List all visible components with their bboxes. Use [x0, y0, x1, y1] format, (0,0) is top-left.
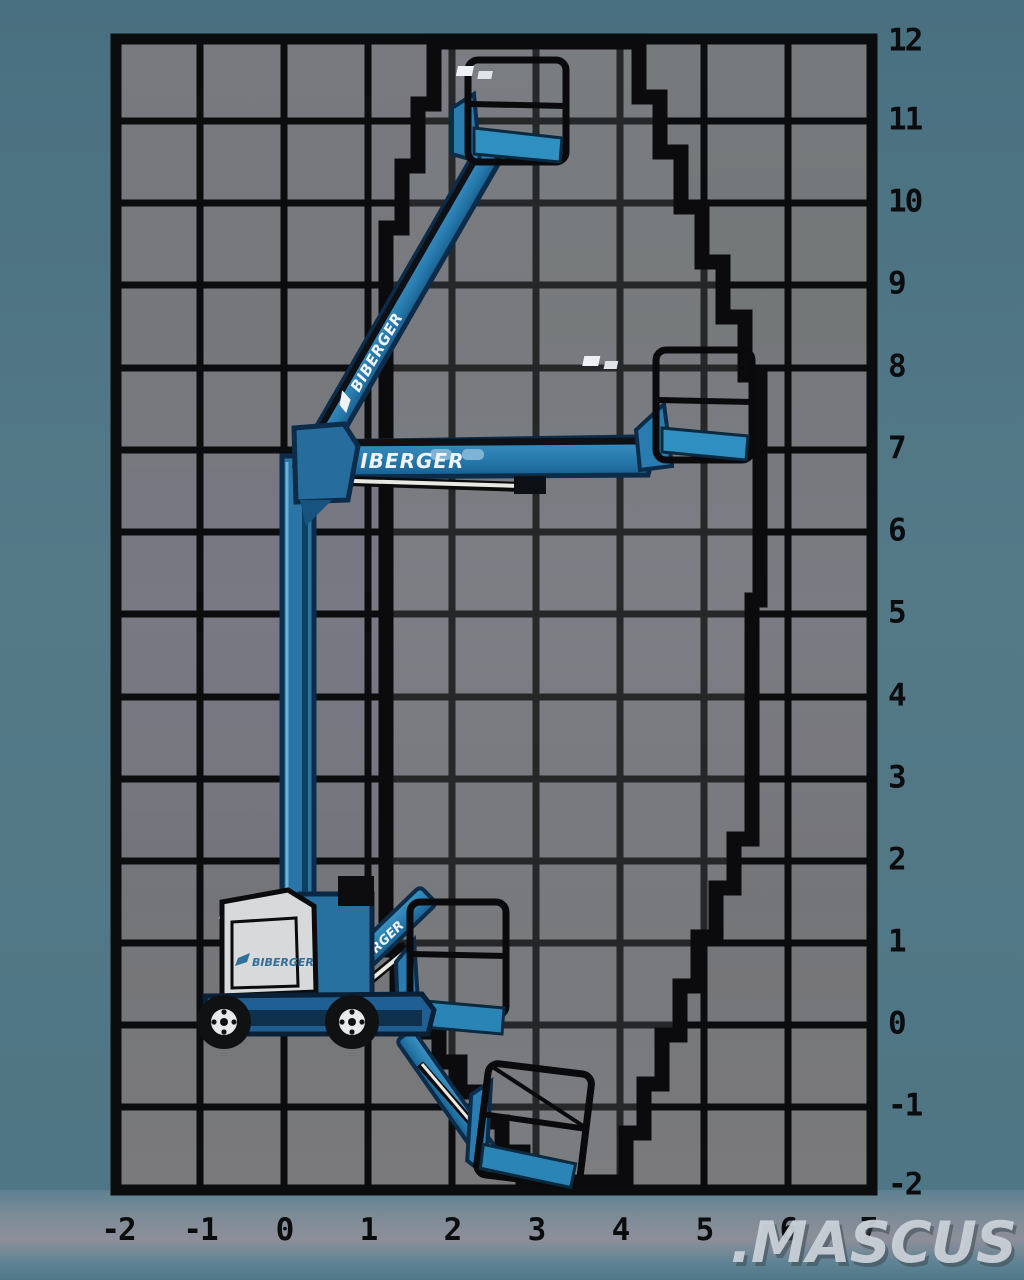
boom-horizontal-top-chord [316, 441, 644, 443]
wheel-rear [325, 995, 379, 1049]
axis-tick-label: 1 [888, 924, 906, 960]
boom-horizontal-brand-label: BIBERGER [344, 449, 464, 473]
basket-top-midrail [470, 104, 566, 106]
wheel-front [197, 995, 251, 1049]
axis-tick-label: 11 [888, 102, 923, 138]
basket-top-console [456, 66, 474, 76]
axis-tick-label: 0 [888, 1006, 905, 1042]
axis-tick-label: -1 [888, 1088, 923, 1124]
basket-mid-midrail [658, 400, 752, 402]
axis-tick-label: 12 [888, 23, 922, 59]
basket-top-console-2 [477, 71, 493, 79]
boom-slot-2 [462, 449, 484, 460]
axis-tick-label: 7 [888, 431, 905, 467]
cover-brand-label: BIBERGER [252, 956, 314, 969]
turret-cover-panel [222, 890, 316, 996]
axis-tick-label: 2 [888, 842, 905, 878]
basket-mid-console-2 [604, 361, 619, 369]
axis-tick-label: -2 [888, 1167, 922, 1203]
mascus-watermark: .MASCUS .MASCUS [730, 1210, 1019, 1280]
axis-tick-label: 4 [888, 678, 906, 714]
axis-tick-label: 2 [444, 1212, 461, 1248]
reach-diagram-page: BIBERGER BIBERGER [0, 0, 1024, 1280]
axis-tick-label: 4 [612, 1212, 630, 1248]
axis-tick-label: 1 [360, 1212, 378, 1248]
axis-tick-label: -1 [183, 1212, 218, 1248]
axis-tick-label: 6 [888, 513, 905, 549]
basket-mid-console [582, 356, 600, 366]
reach-diagram-canvas: BIBERGER BIBERGER [0, 0, 1024, 1280]
watermark-text: .MASCUS [730, 1210, 1016, 1276]
axis-tick-label: 10 [888, 184, 922, 220]
boom-pivot-knuckle [294, 424, 358, 502]
axis-tick-label: 8 [888, 349, 905, 385]
basket-low-midrail [412, 954, 506, 956]
axis-tick-label: 5 [888, 595, 905, 631]
axis-tick-label: 0 [276, 1212, 293, 1248]
axis-tick-label: 3 [528, 1212, 545, 1248]
axis-tick-label: 9 [888, 266, 905, 302]
jib-pivot-plate [338, 876, 374, 906]
axis-tick-label: 5 [696, 1212, 713, 1248]
riser-mast [282, 456, 314, 902]
boom-under-bracket [514, 476, 546, 494]
axis-tick-label: -2 [101, 1212, 135, 1248]
axis-tick-label: 3 [888, 760, 905, 796]
